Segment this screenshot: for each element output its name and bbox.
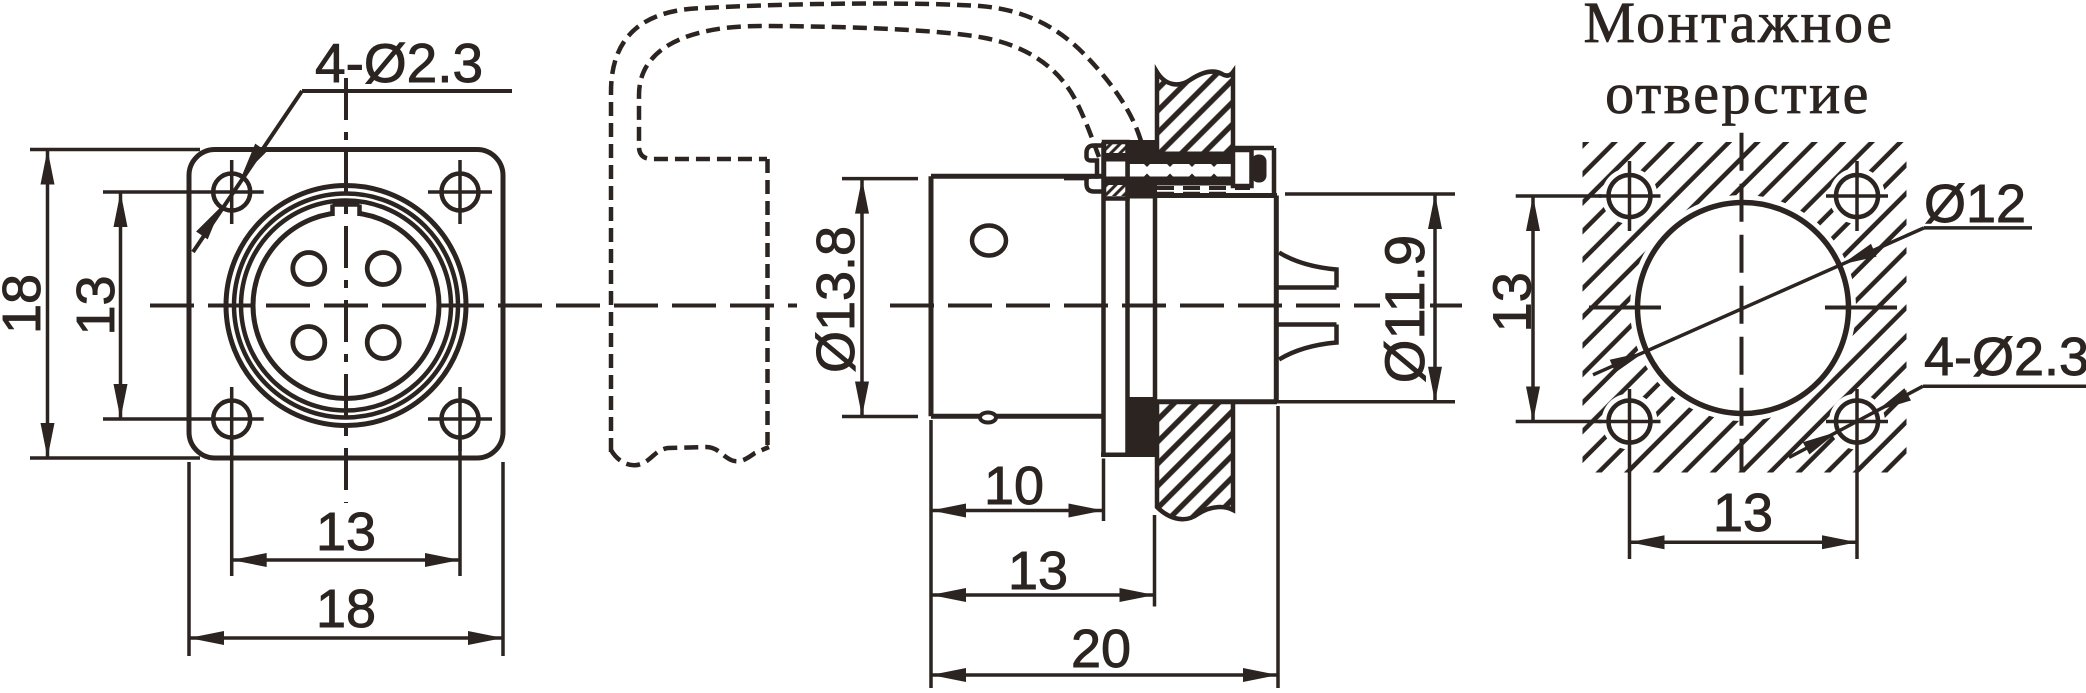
svg-text:13: 13	[1713, 483, 1773, 543]
svg-text:4-Ø2.3: 4-Ø2.3	[1924, 327, 2086, 387]
svg-text:13: 13	[1008, 541, 1068, 601]
svg-text:Ø13.8: Ø13.8	[806, 226, 866, 373]
svg-text:Ø12: Ø12	[1924, 174, 2026, 234]
svg-text:20: 20	[1071, 619, 1131, 679]
svg-text:Ø11.9: Ø11.9	[1373, 235, 1436, 383]
svg-text:13: 13	[66, 275, 126, 335]
svg-text:13: 13	[316, 502, 376, 562]
svg-text:Монтажное: Монтажное	[1583, 0, 1894, 55]
svg-text:18: 18	[316, 579, 376, 639]
svg-text:4-Ø2.3: 4-Ø2.3	[315, 32, 483, 94]
svg-text:18: 18	[0, 274, 52, 334]
svg-text:10: 10	[984, 456, 1044, 516]
svg-text:отверстие: отверстие	[1605, 61, 1871, 126]
svg-text:13: 13	[1483, 272, 1543, 332]
